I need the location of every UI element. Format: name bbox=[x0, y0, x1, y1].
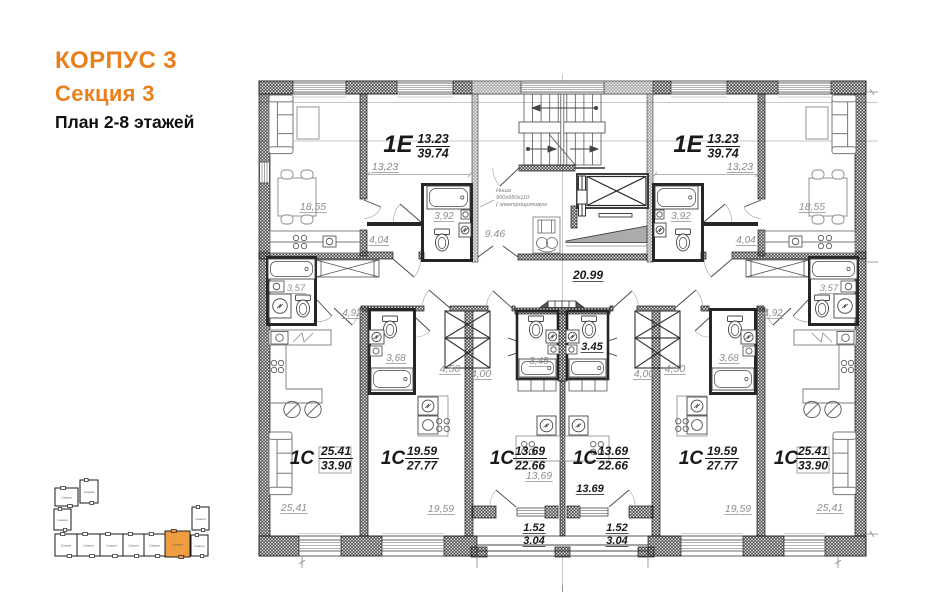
svg-text:3,45: 3,45 bbox=[529, 356, 549, 367]
svg-text:13.69: 13.69 bbox=[515, 444, 545, 458]
svg-text:3.45: 3.45 bbox=[581, 341, 603, 353]
svg-text:4,50: 4,50 bbox=[665, 363, 686, 375]
svg-text:3,68: 3,68 bbox=[386, 353, 406, 364]
svg-text:13.69: 13.69 bbox=[576, 483, 604, 495]
svg-text:19.59: 19.59 bbox=[707, 444, 737, 458]
svg-text:1С: 1С bbox=[381, 448, 406, 469]
svg-text:13,23: 13,23 bbox=[727, 161, 753, 173]
svg-text:13,23: 13,23 bbox=[372, 161, 398, 173]
svg-text:Секция: Секция bbox=[57, 518, 68, 522]
svg-text:1Е: 1Е bbox=[383, 131, 413, 158]
svg-text:3,57: 3,57 bbox=[820, 283, 839, 294]
svg-text:Секция: Секция bbox=[106, 544, 117, 548]
svg-text:( электрощитовую: ( электрощитовую bbox=[496, 202, 548, 208]
svg-text:13.69: 13.69 bbox=[598, 444, 628, 458]
svg-text:3,57: 3,57 bbox=[287, 283, 306, 294]
svg-text:4,92: 4,92 bbox=[763, 308, 783, 319]
svg-text:13.23: 13.23 bbox=[417, 132, 448, 146]
svg-text:Секция: Секция bbox=[128, 544, 139, 548]
svg-text:25,41: 25,41 bbox=[280, 502, 307, 514]
svg-text:3,92: 3,92 bbox=[434, 211, 454, 222]
svg-text:Секция: Секция bbox=[149, 544, 160, 548]
svg-text:25.41: 25.41 bbox=[320, 444, 351, 458]
svg-text:1С: 1С bbox=[490, 448, 515, 469]
svg-text:4,04: 4,04 bbox=[736, 235, 756, 246]
svg-text:20.99: 20.99 bbox=[572, 268, 603, 282]
svg-text:1Е: 1Е bbox=[673, 131, 703, 158]
svg-text:Секция: Секция bbox=[195, 517, 206, 521]
svg-text:27.77: 27.77 bbox=[706, 459, 738, 473]
svg-text:3,92: 3,92 bbox=[671, 211, 691, 222]
svg-text:33.90: 33.90 bbox=[321, 459, 351, 473]
svg-text:4,00: 4,00 bbox=[471, 368, 492, 380]
svg-text:4,04: 4,04 bbox=[369, 235, 389, 246]
svg-text:1С: 1С bbox=[290, 448, 315, 469]
svg-text:3.04: 3.04 bbox=[523, 535, 544, 547]
svg-text:4,50: 4,50 bbox=[440, 363, 461, 375]
svg-text:39.74: 39.74 bbox=[707, 147, 738, 161]
svg-text:13,69: 13,69 bbox=[526, 470, 552, 482]
svg-text:25,41: 25,41 bbox=[816, 502, 843, 514]
svg-text:18,55: 18,55 bbox=[799, 201, 825, 213]
svg-text:13.23: 13.23 bbox=[707, 132, 738, 146]
svg-text:3.04: 3.04 bbox=[606, 535, 627, 547]
svg-text:1С: 1С bbox=[573, 448, 598, 469]
svg-text:33.90: 33.90 bbox=[798, 459, 828, 473]
svg-text:1.52: 1.52 bbox=[606, 522, 627, 534]
svg-text:4,92: 4,92 bbox=[342, 308, 362, 319]
svg-text:Секция: Секция bbox=[83, 544, 94, 548]
svg-text:Секция: Секция bbox=[61, 496, 72, 500]
svg-text:25.41: 25.41 bbox=[797, 444, 828, 458]
svg-text:27.77: 27.77 bbox=[406, 459, 438, 473]
svg-text:4,00: 4,00 bbox=[634, 368, 655, 380]
svg-text:Ниша: Ниша bbox=[496, 188, 511, 194]
svg-text:Секция: Секция bbox=[61, 544, 72, 548]
svg-text:1.52: 1.52 bbox=[523, 522, 544, 534]
svg-text:18,55: 18,55 bbox=[300, 201, 326, 213]
svg-text:39.74: 39.74 bbox=[417, 147, 448, 161]
svg-text:22.66: 22.66 bbox=[597, 459, 628, 473]
svg-text:9.46: 9.46 bbox=[485, 228, 506, 240]
svg-text:Секция: Секция bbox=[194, 544, 205, 548]
svg-text:1С: 1С bbox=[679, 448, 704, 469]
svg-text:19.59: 19.59 bbox=[407, 444, 437, 458]
svg-text:1С: 1С bbox=[774, 448, 799, 469]
svg-text:3,68: 3,68 bbox=[719, 353, 739, 364]
svg-text:Секция: Секция bbox=[84, 490, 95, 494]
svg-text:19,59: 19,59 bbox=[428, 503, 454, 515]
svg-text:Секция: Секция bbox=[172, 543, 183, 547]
svg-text:19,59: 19,59 bbox=[725, 503, 751, 515]
svg-text:900х950х110: 900х950х110 bbox=[496, 195, 530, 201]
